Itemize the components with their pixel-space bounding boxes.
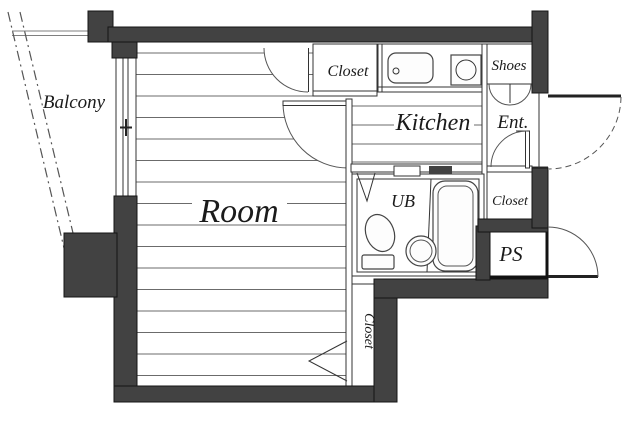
wall-top [108, 27, 548, 42]
wall-right-upper [532, 11, 548, 93]
wall-ps-left [476, 226, 490, 280]
toilet-tank-icon [362, 255, 394, 269]
unit-bath-label: UB [391, 191, 415, 211]
balcony-label: Balcony [43, 92, 106, 113]
bathtub-icon [433, 181, 478, 271]
wall-window-jamb [112, 42, 137, 58]
entrance-label: Ent. [496, 112, 528, 133]
floor-plan: Balcony Room Kitchen Closet Shoes Ent. U… [0, 0, 640, 436]
kitchen-door-leaf [283, 101, 348, 106]
pipe-space-label: PS [498, 242, 523, 266]
wall-ub-bottom [374, 279, 548, 298]
wall-right-mid [532, 168, 548, 228]
kitchen-label: Kitchen [395, 110, 471, 136]
wall-kitchen-segment [429, 166, 452, 174]
ub-door-frame [394, 166, 420, 176]
closet-side-label: Closet [492, 194, 529, 209]
closet-side-door-leaf [526, 131, 530, 168]
closet-top-label: Closet [328, 63, 369, 80]
wall-bottom [114, 386, 397, 402]
shoes-label: Shoes [492, 58, 527, 74]
unit-bath [352, 166, 484, 276]
balcony-window [116, 57, 136, 198]
room-kitchen-divider [346, 99, 352, 386]
floor-plan-drawing: Balcony Room Kitchen Closet Shoes Ent. U… [0, 0, 640, 436]
kitchen-counter [378, 44, 482, 92]
room-label: Room [198, 193, 278, 230]
closet-bottom-label: Closet [361, 313, 376, 350]
wall-left-step [64, 233, 117, 297]
